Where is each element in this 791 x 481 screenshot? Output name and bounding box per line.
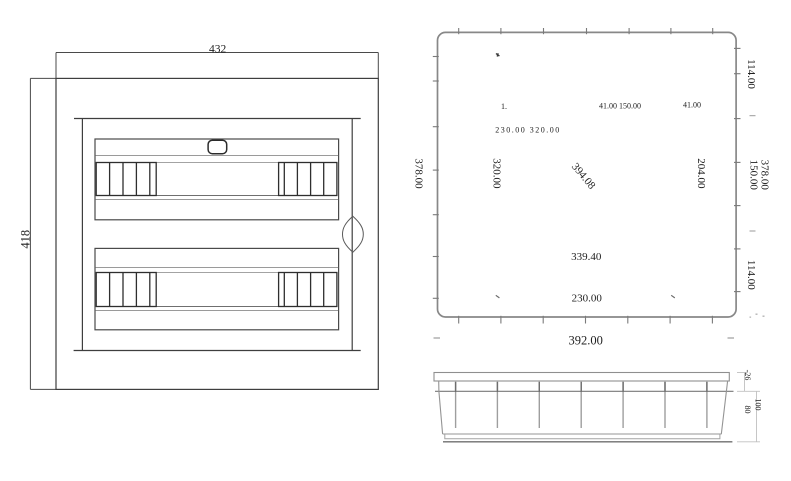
svg-text:204.00: 204.00 [695, 158, 707, 189]
svg-text:378.00: 378.00 [758, 160, 770, 191]
svg-text:150.00: 150.00 [747, 160, 759, 191]
svg-text:339.40: 339.40 [571, 251, 602, 263]
svg-text:320.00: 320.00 [491, 158, 503, 189]
svg-text:230.00: 230.00 [572, 292, 603, 304]
svg-text:114.00: 114.00 [745, 59, 757, 89]
svg-text:100: 100 [754, 399, 763, 411]
svg-text:1.: 1. [501, 102, 507, 111]
svg-text:114.00: 114.00 [745, 260, 757, 290]
svg-text:378.00: 378.00 [413, 158, 425, 189]
svg-text:80: 80 [743, 406, 752, 414]
svg-text:418: 418 [18, 230, 32, 249]
svg-text:230.00 320.00: 230.00 320.00 [495, 126, 561, 135]
svg-text:392.00: 392.00 [569, 333, 603, 347]
svg-text:41.00: 41.00 [683, 101, 701, 110]
svg-text:41.00 150.00: 41.00 150.00 [599, 102, 641, 111]
svg-text:432: 432 [209, 44, 227, 56]
svg-text:-26: -26 [743, 370, 752, 381]
